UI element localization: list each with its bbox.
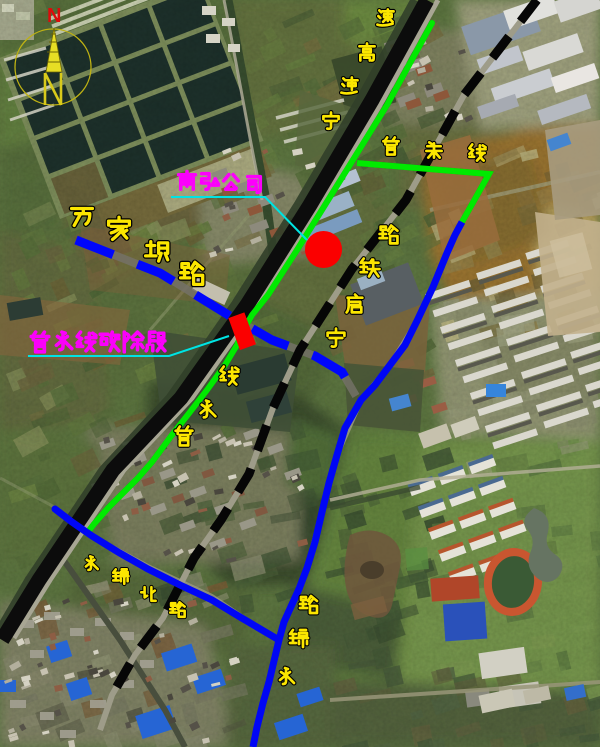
svg-text:N: N [47, 5, 61, 27]
